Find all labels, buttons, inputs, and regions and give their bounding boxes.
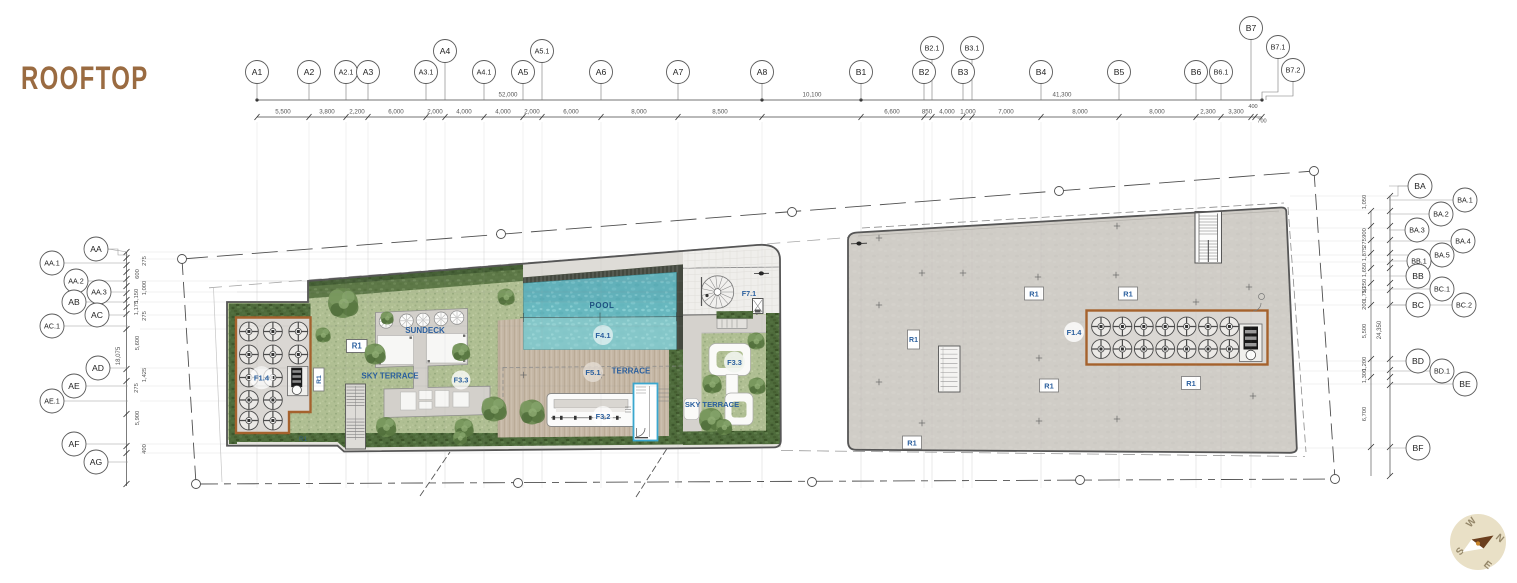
svg-text:R1: R1 <box>909 337 918 344</box>
svg-text:1,175: 1,175 <box>134 301 140 316</box>
svg-text:2,200: 2,200 <box>349 109 365 116</box>
svg-text:1,000: 1,000 <box>142 281 148 296</box>
svg-text:F3.3: F3.3 <box>727 358 742 367</box>
svg-text:B6.1: B6.1 <box>1214 68 1229 77</box>
svg-text:SKY TERRACE: SKY TERRACE <box>361 372 419 381</box>
svg-text:A1: A1 <box>252 67 263 77</box>
svg-text:1,425: 1,425 <box>142 368 148 383</box>
svg-text:275: 275 <box>134 383 140 393</box>
svg-text:275: 275 <box>142 256 148 266</box>
svg-text:BA.5: BA.5 <box>1434 251 1450 260</box>
svg-text:2,300: 2,300 <box>1200 109 1216 116</box>
svg-text:B4: B4 <box>1036 67 1047 77</box>
svg-text:A5: A5 <box>518 67 529 77</box>
svg-text:6,700: 6,700 <box>1362 407 1368 422</box>
svg-text:AA.2: AA.2 <box>68 277 84 286</box>
svg-text:900: 900 <box>1362 228 1368 238</box>
svg-text:F1.4: F1.4 <box>1067 328 1083 337</box>
svg-text:1,300: 1,300 <box>1362 369 1368 384</box>
svg-text:B1: B1 <box>856 67 867 77</box>
svg-text:5,500: 5,500 <box>1362 324 1368 339</box>
svg-text:F4.1: F4.1 <box>595 331 611 340</box>
svg-text:8,000: 8,000 <box>1149 109 1165 116</box>
svg-text:200: 200 <box>1362 300 1368 310</box>
svg-text:18,075: 18,075 <box>116 346 122 365</box>
svg-text:275: 275 <box>142 311 148 321</box>
svg-text:2,000: 2,000 <box>427 109 443 116</box>
svg-text:B3: B3 <box>958 67 969 77</box>
svg-text:BA.1: BA.1 <box>1457 196 1473 205</box>
svg-text:1,650: 1,650 <box>1362 263 1368 278</box>
svg-text:BC: BC <box>1412 300 1424 310</box>
svg-text:POOL: POOL <box>589 301 614 310</box>
svg-text:275: 275 <box>1362 238 1368 248</box>
svg-text:400: 400 <box>142 444 148 454</box>
svg-text:F1.4: F1.4 <box>254 373 270 382</box>
svg-text:700: 700 <box>1257 119 1266 125</box>
svg-text:AC: AC <box>91 310 103 320</box>
svg-text:4,000: 4,000 <box>495 109 511 116</box>
svg-text:1,875: 1,875 <box>1362 247 1368 262</box>
svg-text:R1: R1 <box>1044 381 1053 390</box>
svg-text:A3.1: A3.1 <box>419 68 434 77</box>
svg-text:R1: R1 <box>907 438 916 447</box>
svg-text:F5.1: F5.1 <box>585 368 601 377</box>
svg-text:AC.1: AC.1 <box>44 322 60 331</box>
svg-text:BF: BF <box>1413 443 1424 453</box>
svg-text:F3.2: F3.2 <box>596 412 611 421</box>
svg-text:A2: A2 <box>304 67 315 77</box>
svg-text:F7.1: F7.1 <box>742 289 756 298</box>
svg-text:BE: BE <box>1459 379 1471 389</box>
svg-text:5,500: 5,500 <box>275 109 291 116</box>
svg-text:850: 850 <box>922 109 933 116</box>
svg-text:10,100: 10,100 <box>803 92 822 99</box>
svg-text:A8: A8 <box>757 67 768 77</box>
svg-text:SUNDECK: SUNDECK <box>405 326 445 335</box>
svg-text:B2.1: B2.1 <box>925 44 940 53</box>
svg-text:B6: B6 <box>1191 67 1202 77</box>
svg-text:A2.1: A2.1 <box>339 68 354 77</box>
svg-text:6,600: 6,600 <box>884 109 900 116</box>
svg-text:B3.1: B3.1 <box>965 44 980 53</box>
svg-text:BA.2: BA.2 <box>1433 210 1449 219</box>
svg-text:41,300: 41,300 <box>1053 92 1072 99</box>
svg-text:AA.3: AA.3 <box>91 288 107 297</box>
svg-text:4,000: 4,000 <box>939 109 955 116</box>
svg-text:AA.1: AA.1 <box>44 259 60 268</box>
svg-text:R1: R1 <box>316 375 323 384</box>
svg-text:A4: A4 <box>440 46 451 56</box>
svg-text:BC.2: BC.2 <box>1456 301 1472 310</box>
svg-text:R1: R1 <box>1186 379 1195 388</box>
svg-text:1,000: 1,000 <box>960 109 976 116</box>
svg-text:3,800: 3,800 <box>319 109 335 116</box>
svg-text:BD: BD <box>1412 356 1424 366</box>
svg-text:5,900: 5,900 <box>135 411 141 426</box>
svg-text:52,000: 52,000 <box>499 92 518 99</box>
svg-text:A4.1: A4.1 <box>477 68 492 77</box>
svg-text:400: 400 <box>1248 104 1257 110</box>
svg-text:8,500: 8,500 <box>712 109 728 116</box>
svg-text:BA: BA <box>1414 181 1426 191</box>
svg-text:B2: B2 <box>919 67 930 77</box>
svg-text:AE.1: AE.1 <box>44 397 60 406</box>
svg-text:8,000: 8,000 <box>1072 109 1088 116</box>
svg-text:A3: A3 <box>363 67 374 77</box>
svg-text:6,000: 6,000 <box>388 109 404 116</box>
svg-text:R1: R1 <box>1123 289 1132 298</box>
svg-text:ROOFTOP: ROOFTOP <box>21 60 149 96</box>
svg-text:B5: B5 <box>1114 67 1125 77</box>
svg-text:BC.1: BC.1 <box>1434 285 1450 294</box>
svg-text:6,000: 6,000 <box>563 109 579 116</box>
svg-text:F3.3: F3.3 <box>454 376 469 385</box>
svg-text:AB: AB <box>68 297 80 307</box>
svg-text:8,000: 8,000 <box>631 109 647 116</box>
svg-text:B7.1: B7.1 <box>1271 43 1286 52</box>
svg-text:R1: R1 <box>1029 289 1038 298</box>
svg-text:B7: B7 <box>1246 23 1257 33</box>
svg-text:A7: A7 <box>673 67 684 77</box>
svg-text:B7.2: B7.2 <box>1286 66 1301 75</box>
svg-text:R1: R1 <box>299 436 308 443</box>
svg-text:SKY TERRACE: SKY TERRACE <box>685 400 739 409</box>
svg-text:AD: AD <box>92 363 104 373</box>
svg-text:1,750: 1,750 <box>1362 287 1368 302</box>
svg-text:BD.1: BD.1 <box>1434 367 1450 376</box>
svg-text:AG: AG <box>90 457 103 467</box>
svg-text:R1: R1 <box>352 342 363 351</box>
svg-text:A5.1: A5.1 <box>535 47 550 56</box>
svg-text:600: 600 <box>135 269 141 279</box>
svg-text:1,050: 1,050 <box>1362 195 1368 210</box>
svg-text:24,350: 24,350 <box>1377 320 1383 339</box>
svg-text:BA.3: BA.3 <box>1409 226 1425 235</box>
svg-text:4,000: 4,000 <box>456 109 472 116</box>
svg-text:2,000: 2,000 <box>524 109 540 116</box>
svg-text:AF: AF <box>69 439 80 449</box>
svg-text:A6: A6 <box>596 67 607 77</box>
svg-text:3,300: 3,300 <box>1228 109 1244 116</box>
svg-text:AE: AE <box>68 381 80 391</box>
svg-text:AA: AA <box>90 244 102 254</box>
svg-text:BB: BB <box>1412 271 1424 281</box>
svg-text:7,000: 7,000 <box>998 109 1014 116</box>
svg-text:5,600: 5,600 <box>135 336 141 351</box>
svg-text:BA.4: BA.4 <box>1455 237 1471 246</box>
